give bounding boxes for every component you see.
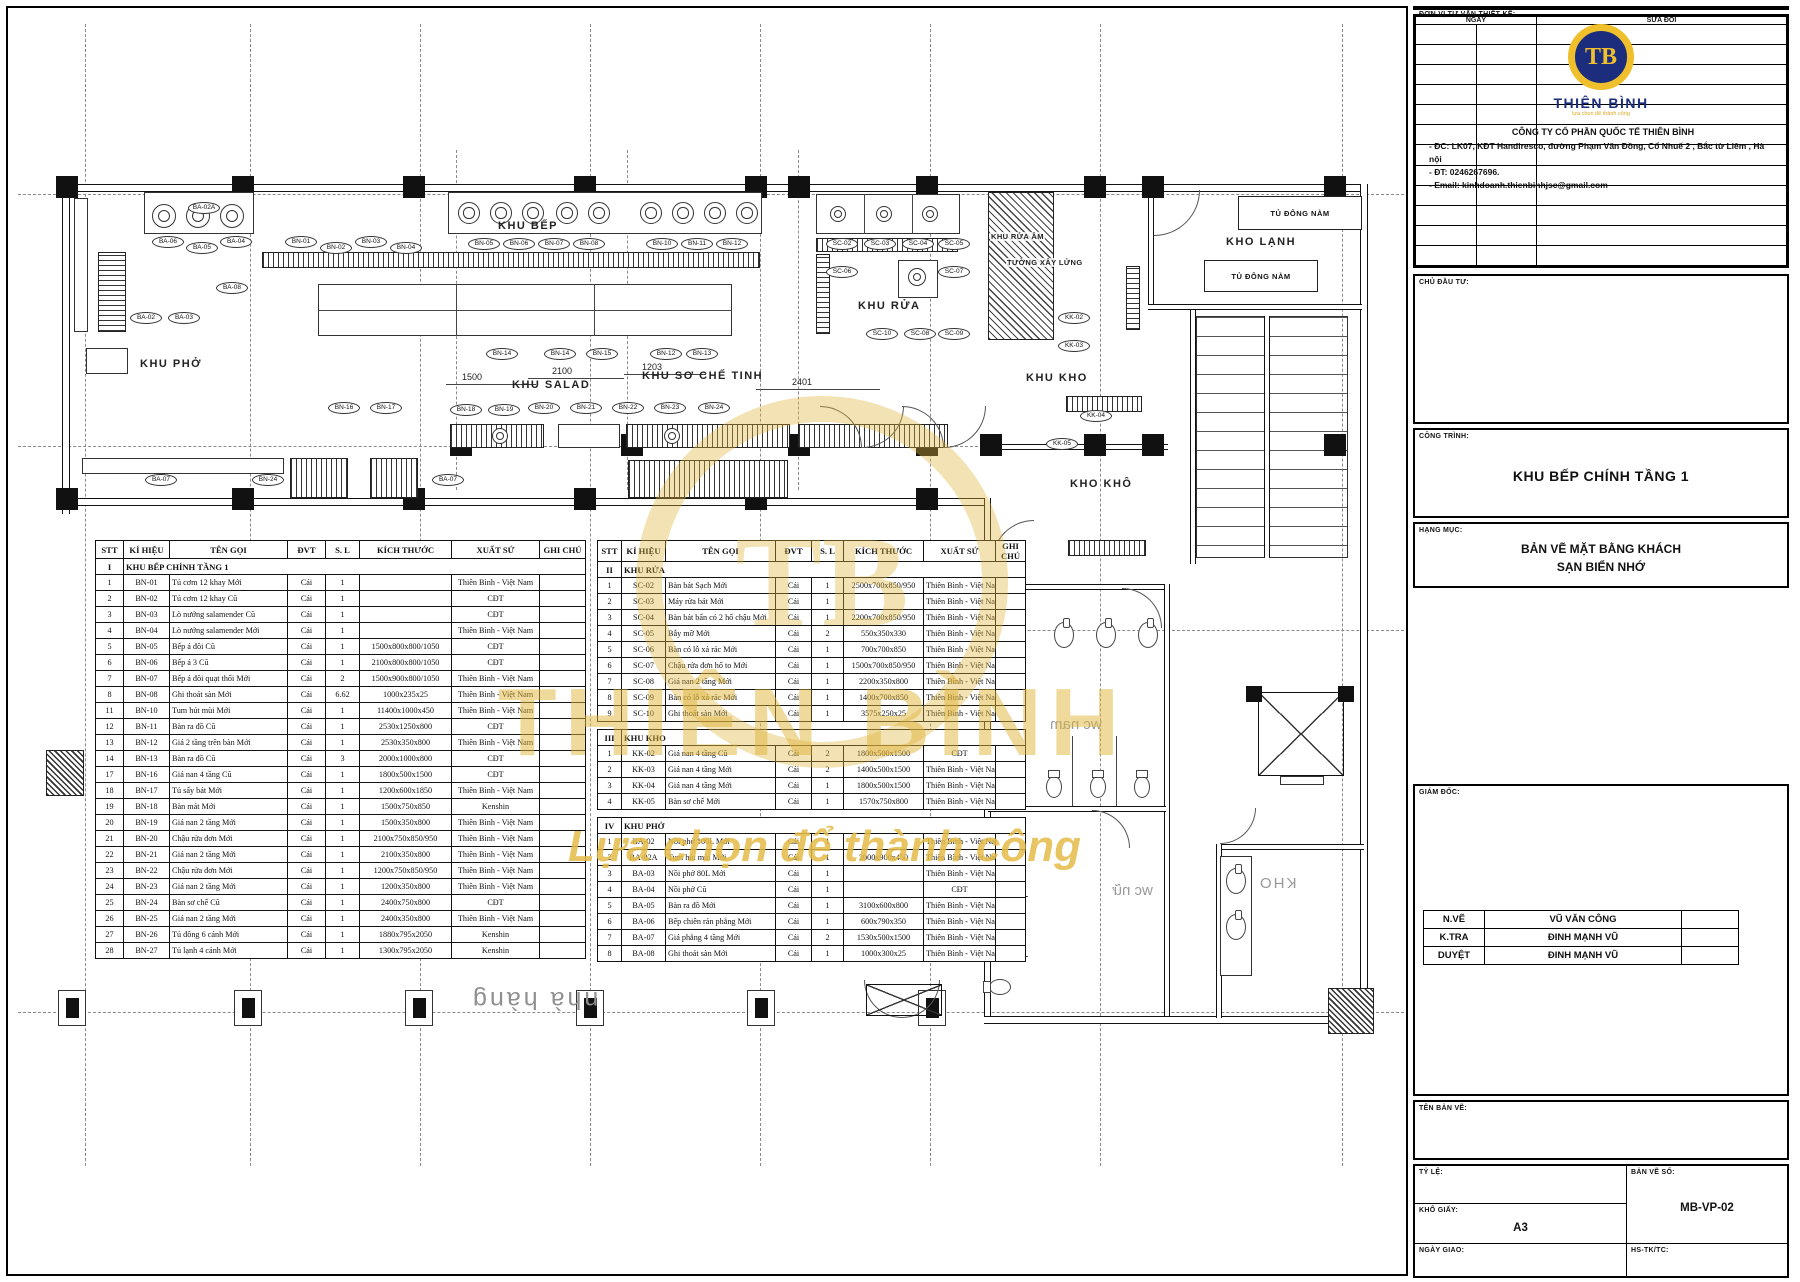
section-row: IVKHU PHỞ xyxy=(598,818,1026,834)
table-cell xyxy=(540,895,586,911)
table-row: 8BN-08Ghi thoát sàn MớiCái6.621000x235x2… xyxy=(96,687,586,703)
table-row: 5BA-05Bàn ra đồ MớiCái13100x600x800Thiên… xyxy=(598,898,1026,914)
table-cell: Thiên Bình - Việt Nam xyxy=(924,706,996,722)
table-cell: Cái xyxy=(776,794,812,810)
table-row: 13BN-12Giá 2 tầng trên bàn MớiCái12530x3… xyxy=(96,735,586,751)
table-cell: 1 xyxy=(812,610,844,626)
table-cell xyxy=(540,591,586,607)
table-cell: Thiên Bình - Việt Nam xyxy=(452,623,540,639)
table-cell xyxy=(540,719,586,735)
table-row: 7BA-07Giá phẳng 4 tầng MớiCái21530x500x1… xyxy=(598,930,1026,946)
table-cell: Cái xyxy=(776,946,812,962)
table-cell: KK-04 xyxy=(622,778,666,794)
table-cell: 1 xyxy=(812,914,844,930)
table-cell xyxy=(540,767,586,783)
table-cell: SC-03 xyxy=(622,594,666,610)
column-header: GHI CHÚ xyxy=(996,541,1026,562)
table-cell: Thiên Bình - Việt Nam xyxy=(924,610,996,626)
project-box: CÔNG TRÌNH: KHU BẾP CHÍNH TẦNG 1 xyxy=(1413,428,1789,518)
table-cell: Thiên Bình - Việt Nam xyxy=(452,703,540,719)
table-cell: 5 xyxy=(598,642,622,658)
table-cell: 1570x750x800 xyxy=(844,794,924,810)
table-cell: BN-01 xyxy=(124,575,170,591)
company-address: - ĐC: LK07, KĐT Handiresco, đường Phạm V… xyxy=(1429,140,1777,166)
table-cell: 7 xyxy=(96,671,124,687)
table-cell: Cái xyxy=(288,831,326,847)
table-cell: Thiên Bình - Việt Nam xyxy=(452,911,540,927)
table-cell xyxy=(996,834,1026,850)
table-cell: Cái xyxy=(288,863,326,879)
table-cell: CĐT xyxy=(452,719,540,735)
table-row: 8SC-09Bàn có lỗ xả rác MớiCái11400x700x8… xyxy=(598,690,1026,706)
table-cell: Thiên Bình - Việt Nam xyxy=(924,690,996,706)
table-row: 12BN-11Bàn ra đồ CũCái12530x1250x800CĐT xyxy=(96,719,586,735)
table-row: 6SC-07Chậu rửa đơn hố to MớiCái11500x700… xyxy=(598,658,1026,674)
table-cell: BN-20 xyxy=(124,831,170,847)
table-cell: 2000x900x450 xyxy=(844,850,924,866)
table-cell: Chậu rửa đơn Mới xyxy=(170,831,288,847)
signature-name: ĐINH MẠNH VŨ xyxy=(1485,947,1682,965)
signature-table: N.VẼVŨ VĂN CÔNGK.TRAĐINH MẠNH VŨDUYỆTĐIN… xyxy=(1423,910,1739,965)
table-cell: Ghi thoát sàn Mới xyxy=(170,687,288,703)
column-header: KÍ HIỆU xyxy=(622,541,666,562)
table-cell: 550x350x330 xyxy=(844,626,924,642)
table-cell: SC-04 xyxy=(622,610,666,626)
table-cell: 8 xyxy=(598,690,622,706)
table-cell: SC-07 xyxy=(622,658,666,674)
investor-box: CHỦ ĐẦU TƯ: xyxy=(1413,274,1789,424)
table-row: 4BA-04Nồi phở CũCái1CĐT xyxy=(598,882,1026,898)
table-cell: 3 xyxy=(598,610,622,626)
paper-cell: KHỔ GIẤY: A3 xyxy=(1415,1204,1627,1244)
scale-label: TỶ LỆ: xyxy=(1419,1169,1443,1176)
revision-cell xyxy=(1537,245,1787,265)
table-cell: Cái xyxy=(288,799,326,815)
table-cell: Giá phẳng 4 tầng Mới xyxy=(666,930,776,946)
table-cell: 23 xyxy=(96,863,124,879)
table-cell: Bếp á đôi quạt thổi Mới xyxy=(170,671,288,687)
company-email: - Email: kinhdoanh.thienbinhjsc@gmail.co… xyxy=(1429,179,1777,192)
revision-row xyxy=(1416,205,1787,225)
table-cell: 2100x800x800/1050 xyxy=(360,655,452,671)
table-cell: CĐT xyxy=(452,895,540,911)
table-cell: 1 xyxy=(326,735,360,751)
table-cell: 1000x300x25 xyxy=(844,946,924,962)
table-cell: Bẫy mỡ Mới xyxy=(666,626,776,642)
table-cell xyxy=(844,866,924,882)
table-cell xyxy=(996,914,1026,930)
section-gap xyxy=(598,722,1026,730)
table-cell: 14 xyxy=(96,751,124,767)
table-cell: 1 xyxy=(598,834,622,850)
table-cell: 3100x600x800 xyxy=(844,898,924,914)
table-cell: Lò nướng salamender Cũ xyxy=(170,607,288,623)
table-cell xyxy=(996,642,1026,658)
table-cell: Thiên Bình - Việt Nam xyxy=(924,946,996,962)
table-cell: Cái xyxy=(776,930,812,946)
category-line1: BẢN VẼ MẶT BẰNG KHÁCH xyxy=(1521,542,1681,556)
table-cell: BN-04 xyxy=(124,623,170,639)
table-cell: Ghi thoát sàn Mới xyxy=(666,706,776,722)
table-cell: Nồi phở 100L Mới xyxy=(666,834,776,850)
table-cell: Cái xyxy=(776,610,812,626)
table-cell xyxy=(996,946,1026,962)
table-cell: Cái xyxy=(776,626,812,642)
section-title: KHU RỬA xyxy=(622,562,1026,578)
table-cell: BN-25 xyxy=(124,911,170,927)
drawing-no-cell: BẢN VẼ SỐ: MB-VP-02 xyxy=(1627,1166,1787,1244)
table-cell: 1200x600x1850 xyxy=(360,783,452,799)
table-cell: Nồi phở Cũ xyxy=(666,882,776,898)
table-cell xyxy=(996,930,1026,946)
table-cell: Thiên Bình - Việt Nam xyxy=(924,626,996,642)
paper-size: A3 xyxy=(1415,1222,1626,1234)
table-row: 3SC-04Bàn bát bẩn có 2 hố chậu MớiCái122… xyxy=(598,610,1026,626)
drawing-title-box: TÊN BẢN VẼ: xyxy=(1413,1100,1789,1160)
table-cell: 2100x350x800 xyxy=(360,847,452,863)
table-row: 3BN-03Lò nướng salamender CũCái1CĐT xyxy=(96,607,586,623)
table-cell: 21 xyxy=(96,831,124,847)
table-cell: 1200x750x850/950 xyxy=(360,863,452,879)
signature-blank xyxy=(1682,911,1739,929)
column-header: TÊN GỌI xyxy=(170,541,288,559)
table-row: 19BN-18Bàn mát MớiCái11500x750x850Kenshi… xyxy=(96,799,586,815)
table-cell: 2 xyxy=(326,671,360,687)
table-row: 28BN-27Tủ lạnh 4 cánh MớiCái11300x795x20… xyxy=(96,943,586,959)
table-cell: 6.62 xyxy=(326,687,360,703)
revision-cell xyxy=(1416,245,1477,265)
table-cell: 1 xyxy=(812,850,844,866)
designer-label: ĐƠN VỊ TƯ VẤN THIẾT KẾ: xyxy=(1419,11,1515,18)
table-cell: 1 xyxy=(326,831,360,847)
table-cell: 1 xyxy=(326,799,360,815)
table-cell: Thiên Bình - Việt Nam xyxy=(452,815,540,831)
table-cell: BN-08 xyxy=(124,687,170,703)
table-cell: 17 xyxy=(96,767,124,783)
table-cell: Giá nan 4 tầng Mới xyxy=(666,762,776,778)
column-header: TÊN GỌI xyxy=(666,541,776,562)
table-row: 21BN-20Chậu rửa đơn MớiCái12100x750x850/… xyxy=(96,831,586,847)
table-cell: 1 xyxy=(812,866,844,882)
table-cell: Bàn ra đồ Cũ xyxy=(170,751,288,767)
drawing-no: MB-VP-02 xyxy=(1627,1202,1787,1214)
table-cell: Thiên Bình - Việt Nam xyxy=(452,831,540,847)
table-cell: Cái xyxy=(288,815,326,831)
logo-tagline: lựa chọn để thành công xyxy=(1415,111,1787,117)
signature-row: K.TRAĐINH MẠNH VŨ xyxy=(1424,929,1739,947)
table-cell: 25 xyxy=(96,895,124,911)
table-cell: BA-02 xyxy=(622,834,666,850)
table-cell: BN-07 xyxy=(124,671,170,687)
equipment-table: STTKÍ HIỆUTÊN GỌIĐVTS. LKÍCH THƯỚCXUẤT S… xyxy=(95,540,586,959)
table-cell: Cái xyxy=(288,847,326,863)
table-cell: CĐT xyxy=(452,767,540,783)
table-cell: Bàn có lỗ xả rác Mới xyxy=(666,690,776,706)
table-cell: BN-22 xyxy=(124,863,170,879)
table-row: 20BN-19Giá nan 2 tầng MớiCái11500x350x80… xyxy=(96,815,586,831)
table-cell: Thiên Bình - Việt Nam xyxy=(924,914,996,930)
table-header-row: STTKÍ HIỆUTÊN GỌIĐVTS. LKÍCH THƯỚCXUẤT S… xyxy=(598,541,1026,562)
table-cell: 1 xyxy=(812,946,844,962)
table-cell: Giá nan 4 tầng Mới xyxy=(666,778,776,794)
table-row: 2KK-03Giá nan 4 tầng MớiCái21400x500x150… xyxy=(598,762,1026,778)
table-cell: 3 xyxy=(96,607,124,623)
table-cell: 2 xyxy=(598,594,622,610)
table-cell: 1800x500x1500 xyxy=(360,767,452,783)
revision-cell xyxy=(1416,205,1477,225)
table-cell: 3 xyxy=(326,751,360,767)
table-cell: SC-02 xyxy=(622,578,666,594)
director-box: GIÁM ĐỐC: N.VẼVŨ VĂN CÔNGK.TRAĐINH MẠNH … xyxy=(1413,784,1789,1096)
table-cell xyxy=(540,655,586,671)
table-cell: Cái xyxy=(288,879,326,895)
project-label: CÔNG TRÌNH: xyxy=(1419,433,1469,440)
table-cell: Kenshin xyxy=(452,927,540,943)
table-cell: 1 xyxy=(812,882,844,898)
table-cell: 8 xyxy=(96,687,124,703)
table-cell: KK-05 xyxy=(622,794,666,810)
table-row: 7BN-07Bếp á đôi quạt thổi MớiCái21500x90… xyxy=(96,671,586,687)
table-cell: 6 xyxy=(598,658,622,674)
table-cell xyxy=(996,746,1026,762)
table-row: 1SC-02Bàn bát Sạch MớiCái12500x700x850/9… xyxy=(598,578,1026,594)
table-cell: Cái xyxy=(288,943,326,959)
table-cell: Giá 2 tầng trên bàn Mới xyxy=(170,735,288,751)
table-cell: Thiên Bình - Việt Nam xyxy=(452,863,540,879)
table-cell: 1 xyxy=(326,943,360,959)
table-cell: 1 xyxy=(812,594,844,610)
drawing-title-label: TÊN BẢN VẼ: xyxy=(1419,1105,1467,1112)
table-cell: 20 xyxy=(96,815,124,831)
category-line2: SẠN BIỂN NHỚ xyxy=(1557,560,1645,574)
scale-cell: TỶ LỆ: xyxy=(1415,1166,1627,1204)
table-cell: Bàn sơ chế Cũ xyxy=(170,895,288,911)
table-cell: Bếp á đôi Cũ xyxy=(170,639,288,655)
table-cell: 4 xyxy=(598,882,622,898)
table-row: 7SC-08Giá nan 2 tầng MớiCái12200x350x800… xyxy=(598,674,1026,690)
table-cell: 7 xyxy=(598,674,622,690)
table-cell: 2 xyxy=(812,626,844,642)
table-row: 1BA-02Nồi phở 100L MớiCái1Thiên Bình - V… xyxy=(598,834,1026,850)
table-cell: 8 xyxy=(598,946,622,962)
company-name: CÔNG TY CỔ PHẦN QUỐC TẾ THIÊN BÌNH xyxy=(1429,126,1777,140)
table-row: 5SC-06Bàn có lỗ xả rác MớiCái1700x700x85… xyxy=(598,642,1026,658)
revision-cell xyxy=(1476,225,1537,245)
table-row: 18BN-17Tủ sấy bát MớiCái11200x600x1850Th… xyxy=(96,783,586,799)
date-cell: NGÀY GIAO: xyxy=(1415,1244,1627,1276)
table-cell: Cái xyxy=(288,639,326,655)
column-header: KÍCH THƯỚC xyxy=(844,541,924,562)
table-cell: 1000x235x25 xyxy=(360,687,452,703)
table-cell: Thiên Bình - Việt Nam xyxy=(924,898,996,914)
table-cell: BA-03 xyxy=(622,866,666,882)
table-cell xyxy=(540,847,586,863)
drawing-no-label: BẢN VẼ SỐ: xyxy=(1631,1169,1675,1176)
table-cell: Thiên Bình - Việt Nam xyxy=(452,671,540,687)
table-cell: Lò nướng salamender Mới xyxy=(170,623,288,639)
table-cell: 2 xyxy=(96,591,124,607)
table-cell: 24 xyxy=(96,879,124,895)
signature-blank xyxy=(1682,929,1739,947)
table-cell: BN-12 xyxy=(124,735,170,751)
table-cell: 1 xyxy=(812,778,844,794)
table-header-row: STTKÍ HIỆUTÊN GỌIĐVTS. LKÍCH THƯỚCXUẤT S… xyxy=(96,541,586,559)
table-cell: BN-24 xyxy=(124,895,170,911)
column-header: ĐVT xyxy=(776,541,812,562)
section-title: KHU PHỞ xyxy=(622,818,1026,834)
table-cell: BA-08 xyxy=(622,946,666,962)
table-cell: 1 xyxy=(326,911,360,927)
signature-role: DUYỆT xyxy=(1424,947,1485,965)
table-cell: 600x790x350 xyxy=(844,914,924,930)
column-header: GHI CHÚ xyxy=(540,541,586,559)
table-cell: 2200x700x850/950 xyxy=(844,610,924,626)
table-cell: 1 xyxy=(326,655,360,671)
table-row: 9SC-10Ghi thoát sàn MớiCái13575x250x25Th… xyxy=(598,706,1026,722)
table-cell: 1 xyxy=(812,706,844,722)
table-cell: Chậu rửa đơn Mới xyxy=(170,863,288,879)
table-cell xyxy=(996,866,1026,882)
table-row: 26BN-25Giá nan 2 tầng MớiCái12400x350x80… xyxy=(96,911,586,927)
table-cell: 1 xyxy=(598,578,622,594)
table-cell: 1500x350x800 xyxy=(360,815,452,831)
table-cell: BN-05 xyxy=(124,639,170,655)
table-row: 2SC-03Máy rửa bát MớiCái1Thiên Bình - Vi… xyxy=(598,594,1026,610)
table-row: 2BN-02Tủ cơm 12 khay CũCái1CĐT xyxy=(96,591,586,607)
table-cell: 1 xyxy=(812,690,844,706)
director-label: GIÁM ĐỐC: xyxy=(1419,789,1460,796)
table-cell: Kenshin xyxy=(452,799,540,815)
table-cell xyxy=(540,799,586,815)
section-number: IV xyxy=(598,818,622,834)
investor-label: CHỦ ĐẦU TƯ: xyxy=(1419,279,1469,286)
table-cell: Cái xyxy=(288,751,326,767)
section-number: I xyxy=(96,559,124,575)
table-cell: 1 xyxy=(326,703,360,719)
table-cell: 1 xyxy=(326,895,360,911)
column-header: ĐVT xyxy=(288,541,326,559)
table-cell: Cái xyxy=(288,719,326,735)
logo-company-name: THIÊN BÌNH xyxy=(1415,95,1787,111)
table-cell: BN-03 xyxy=(124,607,170,623)
table-cell: Thiên Bình - Việt Nam xyxy=(924,930,996,946)
table-cell: Tủ cơm 12 khay Mới xyxy=(170,575,288,591)
table-row: 11BN-10Tum hút mùi MớiCái111400x1000x450… xyxy=(96,703,586,719)
table-cell: Cái xyxy=(776,834,812,850)
table-row: 25BN-24Bàn sơ chế CũCái12400x750x800CĐT xyxy=(96,895,586,911)
table-row: 3KK-04Giá nan 4 tầng MớiCái11800x500x150… xyxy=(598,778,1026,794)
category-box: HẠNG MỤC: BẢN VẼ MẶT BẰNG KHÁCH SẠN BIỂN… xyxy=(1413,522,1789,588)
table-cell: 2 xyxy=(812,762,844,778)
column-header: S. L xyxy=(812,541,844,562)
table-cell: Bàn bát Sạch Mới xyxy=(666,578,776,594)
table-cell xyxy=(540,927,586,943)
table-cell: 1 xyxy=(812,674,844,690)
table-cell: 6 xyxy=(598,914,622,930)
table-cell: KK-03 xyxy=(622,762,666,778)
table-cell xyxy=(996,626,1026,642)
column-header: KÍCH THƯỚC xyxy=(360,541,452,559)
table-cell: 1800x500x1500 xyxy=(844,746,924,762)
table-cell: Kenshin xyxy=(452,943,540,959)
section-row: IIKHU RỬA xyxy=(598,562,1026,578)
table-cell: Thiên Bình - Việt Nam xyxy=(452,879,540,895)
table-cell: 1 xyxy=(96,575,124,591)
column-header: STT xyxy=(96,541,124,559)
table-cell: Cái xyxy=(288,623,326,639)
table-cell: Cái xyxy=(776,674,812,690)
signature-blank xyxy=(1682,947,1739,965)
table-cell: CĐT xyxy=(452,751,540,767)
table-cell: Thiên Bình - Việt Nam xyxy=(924,834,996,850)
table-cell: 2400x750x800 xyxy=(360,895,452,911)
table-cell: 2000x1000x800 xyxy=(360,751,452,767)
table-cell: Cái xyxy=(776,850,812,866)
sheet-info-box: TỶ LỆ: KHỔ GIẤY: A3 NGÀY GIAO: BẢN VẼ SỐ… xyxy=(1413,1164,1789,1278)
table-cell: KK-02 xyxy=(622,746,666,762)
table-cell: 12 xyxy=(96,719,124,735)
table-cell: Giá nan 2 tầng Mới xyxy=(170,847,288,863)
table-cell: Cái xyxy=(288,703,326,719)
table-cell: CĐT xyxy=(924,882,996,898)
table-cell: Bàn sơ chế Mới xyxy=(666,794,776,810)
table-cell: 1500x900x800/1050 xyxy=(360,671,452,687)
table-cell: Cái xyxy=(288,655,326,671)
revision-cell xyxy=(1476,205,1537,225)
table-cell: BN-23 xyxy=(124,879,170,895)
table-cell xyxy=(540,671,586,687)
table-cell: Thiên Bình - Việt Nam xyxy=(924,794,996,810)
table-row: 6BN-06Bếp á 3 CũCái12100x800x800/1050CĐT xyxy=(96,655,586,671)
table-row: 1KK-02Giá nan 4 tầng CũCái21800x500x1500… xyxy=(598,746,1026,762)
table-cell: 1 xyxy=(812,898,844,914)
table-row: 23BN-22Chậu rửa đơn MớiCái11200x750x850/… xyxy=(96,863,586,879)
table-cell xyxy=(540,815,586,831)
table-cell: Cái xyxy=(776,578,812,594)
table-cell xyxy=(996,850,1026,866)
table-cell: Chậu rửa đơn hố to Mới xyxy=(666,658,776,674)
table-cell: Cái xyxy=(288,911,326,927)
table-cell: Cái xyxy=(288,735,326,751)
table-cell: Thiên Bình - Việt Nam xyxy=(924,866,996,882)
table-cell: BN-17 xyxy=(124,783,170,799)
table-cell xyxy=(540,623,586,639)
table-cell: Thiên Bình - Việt Nam xyxy=(924,658,996,674)
table-cell xyxy=(360,607,452,623)
paper-label: KHỔ GIẤY: xyxy=(1419,1207,1458,1214)
table-cell: Thiên Bình - Việt Nam xyxy=(924,642,996,658)
table-cell: Thiên Bình - Việt Nam xyxy=(452,735,540,751)
table-cell: 1 xyxy=(326,639,360,655)
table-row: 4SC-05Bẫy mỡ MớiCái2550x350x330Thiên Bìn… xyxy=(598,626,1026,642)
table-cell xyxy=(540,639,586,655)
table-cell xyxy=(996,674,1026,690)
table-cell: CĐT xyxy=(924,746,996,762)
table-cell: 26 xyxy=(96,911,124,927)
table-cell: Cái xyxy=(288,575,326,591)
hs-cell: HS-TK/TC: xyxy=(1627,1244,1787,1276)
table-cell: Giá nan 2 tầng Mới xyxy=(170,879,288,895)
table-cell: Bếp á 3 Cũ xyxy=(170,655,288,671)
table-cell: 1 xyxy=(598,746,622,762)
table-cell: Giá nan 2 tầng Mới xyxy=(170,911,288,927)
table-cell: 2 xyxy=(812,746,844,762)
table-cell xyxy=(540,783,586,799)
table-cell: 2530x350x800 xyxy=(360,735,452,751)
table-cell: 1800x500x1500 xyxy=(844,778,924,794)
table-cell: 1500x700x850/950 xyxy=(844,658,924,674)
table-cell: Thiên Bình - Việt Nam xyxy=(924,850,996,866)
